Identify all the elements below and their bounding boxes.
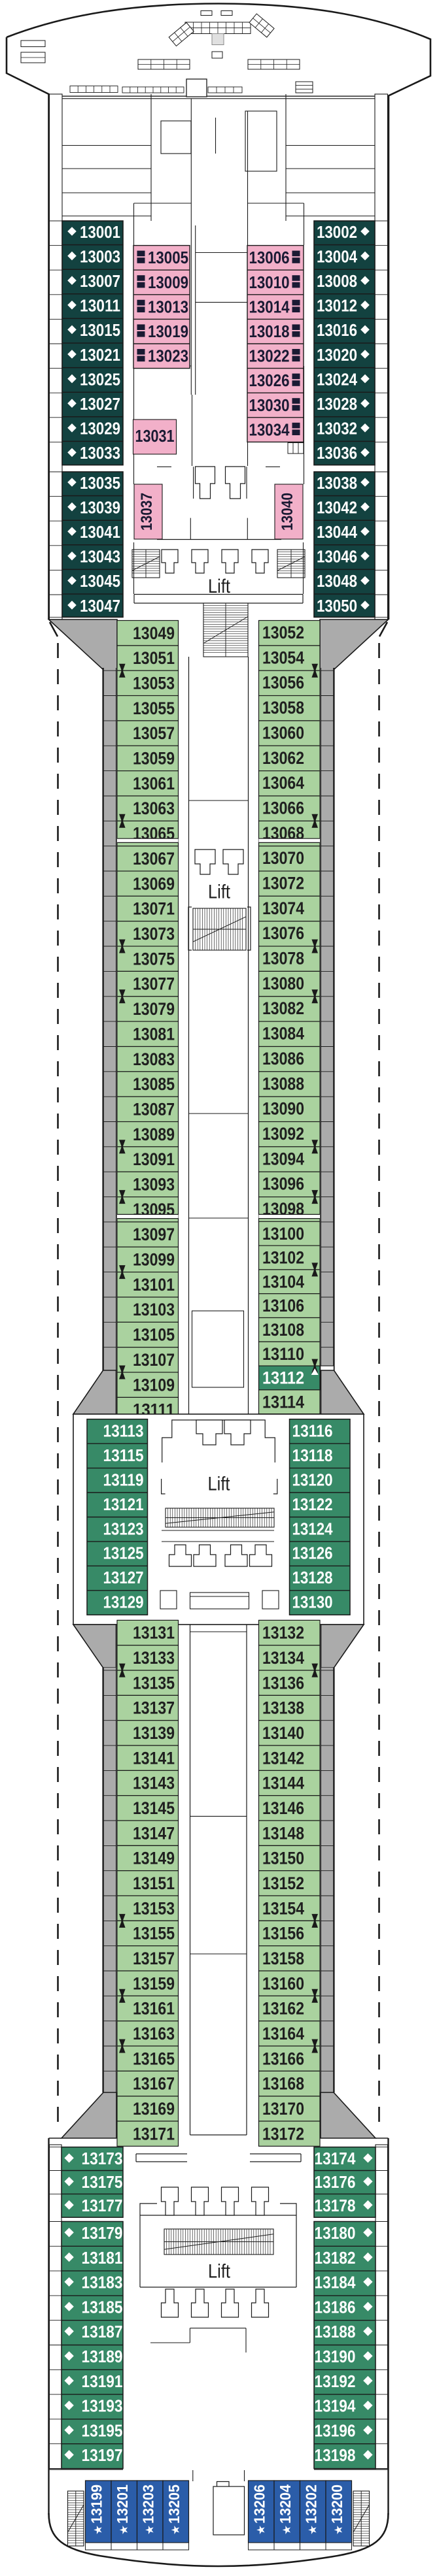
svg-text:13034: 13034 [249, 420, 290, 439]
svg-text:13081: 13081 [133, 1024, 175, 1044]
svg-text:13158: 13158 [262, 1949, 304, 1968]
svg-text:13176: 13176 [315, 2172, 356, 2192]
svg-text:13015: 13015 [80, 320, 120, 340]
svg-text:13102: 13102 [262, 1248, 304, 1268]
svg-text:13028: 13028 [317, 394, 357, 414]
svg-text:13109: 13109 [133, 1375, 175, 1395]
svg-text:13170: 13170 [262, 2099, 304, 2119]
svg-text:13197: 13197 [82, 2445, 123, 2465]
svg-text:13157: 13157 [133, 1949, 175, 1968]
svg-text:13100: 13100 [262, 1224, 304, 1244]
svg-text:13128: 13128 [292, 1568, 333, 1587]
svg-text:13169: 13169 [133, 2099, 175, 2119]
svg-text:13173: 13173 [82, 2149, 123, 2168]
svg-text:13201: 13201 [114, 2485, 131, 2524]
svg-text:★: ★ [281, 2525, 293, 2535]
svg-text:Lift: Lift [208, 1474, 231, 1495]
svg-text:13080: 13080 [262, 974, 304, 993]
svg-text:13012: 13012 [317, 296, 357, 316]
svg-text:13149: 13149 [133, 1849, 175, 1868]
svg-text:13168: 13168 [262, 2074, 304, 2094]
svg-text:13075: 13075 [133, 949, 175, 968]
svg-text:13026: 13026 [249, 371, 290, 390]
svg-text:13154: 13154 [262, 1898, 304, 1918]
svg-text:13196: 13196 [315, 2420, 356, 2440]
svg-text:13180: 13180 [315, 2223, 356, 2243]
svg-text:13118: 13118 [292, 1445, 333, 1465]
svg-text:13043: 13043 [80, 547, 120, 567]
svg-text:13092: 13092 [262, 1124, 304, 1144]
svg-text:13165: 13165 [133, 2049, 175, 2068]
svg-text:13152: 13152 [262, 1874, 304, 1893]
svg-text:13082: 13082 [262, 999, 304, 1018]
svg-text:13070: 13070 [262, 848, 304, 868]
svg-text:13036: 13036 [317, 443, 357, 463]
svg-text:13053: 13053 [133, 674, 175, 693]
svg-text:13150: 13150 [262, 1849, 304, 1868]
svg-text:13138: 13138 [262, 1698, 304, 1718]
svg-text:★: ★ [169, 2525, 182, 2535]
svg-text:13079: 13079 [133, 999, 175, 1019]
svg-text:★: ★ [307, 2525, 319, 2535]
svg-text:13057: 13057 [133, 723, 175, 743]
svg-text:13083: 13083 [133, 1049, 175, 1069]
svg-text:13071: 13071 [133, 899, 175, 919]
svg-text:13160: 13160 [262, 1973, 304, 1993]
svg-text:13041: 13041 [80, 522, 120, 542]
svg-text:13101: 13101 [133, 1275, 175, 1295]
svg-text:13167: 13167 [133, 2074, 175, 2094]
svg-text:13182: 13182 [315, 2248, 356, 2268]
svg-text:13133: 13133 [133, 1648, 175, 1668]
svg-text:13030: 13030 [249, 395, 290, 415]
svg-text:13023: 13023 [148, 346, 188, 366]
svg-text:13009: 13009 [148, 272, 188, 292]
svg-text:13126: 13126 [292, 1544, 333, 1563]
svg-text:13008: 13008 [317, 271, 357, 291]
svg-text:13204: 13204 [277, 2485, 294, 2524]
svg-text:13091: 13091 [133, 1149, 175, 1169]
svg-text:13016: 13016 [317, 320, 357, 340]
svg-text:13120: 13120 [292, 1470, 333, 1489]
svg-text:13190: 13190 [315, 2347, 356, 2366]
svg-text:13140: 13140 [262, 1723, 304, 1743]
svg-text:13067: 13067 [133, 849, 175, 868]
svg-text:13056: 13056 [262, 673, 304, 693]
svg-text:13060: 13060 [262, 723, 304, 742]
svg-text:13031: 13031 [135, 426, 175, 446]
svg-text:★: ★ [92, 2525, 105, 2535]
svg-text:13159: 13159 [133, 1973, 175, 1993]
svg-text:13194: 13194 [315, 2396, 356, 2416]
svg-text:13086: 13086 [262, 1049, 304, 1068]
svg-text:13105: 13105 [133, 1325, 175, 1345]
svg-text:13123: 13123 [103, 1519, 144, 1538]
svg-text:13179: 13179 [82, 2223, 123, 2243]
svg-text:13038: 13038 [317, 473, 357, 493]
svg-text:★: ★ [332, 2525, 345, 2535]
svg-text:13198: 13198 [315, 2445, 356, 2465]
svg-text:13094: 13094 [262, 1149, 304, 1168]
svg-text:13135: 13135 [133, 1673, 175, 1693]
svg-text:13185: 13185 [82, 2297, 123, 2317]
svg-text:13066: 13066 [262, 799, 304, 818]
svg-text:13199: 13199 [88, 2485, 105, 2524]
svg-text:13144: 13144 [262, 1774, 304, 1793]
svg-text:13010: 13010 [249, 272, 290, 292]
svg-text:13203: 13203 [140, 2485, 157, 2524]
svg-text:13106: 13106 [262, 1296, 304, 1315]
svg-text:13040: 13040 [279, 493, 296, 531]
svg-text:13187: 13187 [82, 2322, 123, 2341]
svg-text:13064: 13064 [262, 773, 304, 793]
svg-text:13004: 13004 [317, 246, 357, 266]
svg-text:13115: 13115 [103, 1445, 144, 1465]
svg-text:★: ★ [118, 2525, 130, 2535]
svg-text:13195: 13195 [82, 2420, 123, 2440]
svg-text:13096: 13096 [262, 1174, 304, 1194]
svg-text:13104: 13104 [262, 1272, 304, 1291]
svg-text:13162: 13162 [262, 1999, 304, 2019]
svg-text:13137: 13137 [133, 1698, 175, 1718]
svg-text:13114: 13114 [262, 1392, 304, 1412]
svg-text:13062: 13062 [262, 748, 304, 768]
svg-text:13181: 13181 [82, 2248, 123, 2268]
svg-text:13032: 13032 [317, 419, 357, 438]
svg-text:13146: 13146 [262, 1798, 304, 1818]
svg-text:13134: 13134 [262, 1648, 304, 1668]
svg-text:13156: 13156 [262, 1924, 304, 1943]
svg-text:13055: 13055 [133, 699, 175, 718]
svg-text:13077: 13077 [133, 974, 175, 994]
svg-text:13058: 13058 [262, 698, 304, 718]
svg-text:13186: 13186 [315, 2297, 356, 2317]
svg-text:13087: 13087 [133, 1100, 175, 1119]
svg-text:13076: 13076 [262, 923, 304, 943]
svg-text:13136: 13136 [262, 1673, 304, 1693]
svg-text:13121: 13121 [103, 1494, 144, 1514]
svg-text:13093: 13093 [133, 1175, 175, 1195]
svg-text:13125: 13125 [103, 1544, 144, 1563]
svg-text:13020: 13020 [317, 345, 357, 365]
svg-text:13002: 13002 [317, 222, 357, 242]
svg-text:13124: 13124 [292, 1519, 333, 1538]
svg-text:13063: 13063 [133, 799, 175, 818]
svg-text:13021: 13021 [80, 345, 120, 365]
svg-text:13090: 13090 [262, 1099, 304, 1119]
svg-text:13051: 13051 [133, 648, 175, 668]
svg-text:13178: 13178 [315, 2196, 356, 2215]
svg-text:13183: 13183 [82, 2273, 123, 2292]
svg-text:13035: 13035 [80, 473, 120, 493]
svg-text:13099: 13099 [133, 1250, 175, 1270]
svg-text:13013: 13013 [148, 297, 188, 316]
svg-text:★: ★ [144, 2525, 156, 2535]
svg-text:13003: 13003 [80, 246, 120, 266]
svg-text:13175: 13175 [82, 2172, 123, 2192]
svg-text:13050: 13050 [317, 596, 357, 616]
svg-text:13139: 13139 [133, 1723, 175, 1743]
svg-text:13132: 13132 [262, 1623, 304, 1643]
svg-text:13019: 13019 [148, 322, 188, 341]
svg-text:13171: 13171 [133, 2124, 175, 2143]
svg-text:13052: 13052 [262, 623, 304, 642]
svg-text:13059: 13059 [133, 749, 175, 768]
svg-text:13142: 13142 [262, 1748, 304, 1768]
svg-text:13046: 13046 [317, 547, 357, 567]
svg-text:13042: 13042 [317, 497, 357, 517]
svg-text:13122: 13122 [292, 1494, 333, 1514]
svg-text:13112: 13112 [262, 1368, 304, 1388]
svg-text:13188: 13188 [315, 2322, 356, 2341]
svg-text:13047: 13047 [80, 596, 120, 616]
svg-text:13107: 13107 [133, 1350, 175, 1370]
svg-text:13164: 13164 [262, 2024, 304, 2043]
svg-text:13143: 13143 [133, 1774, 175, 1793]
svg-text:13006: 13006 [249, 248, 290, 267]
svg-text:13001: 13001 [80, 222, 120, 242]
svg-text:13029: 13029 [80, 419, 120, 438]
svg-text:13148: 13148 [262, 1823, 304, 1843]
svg-text:13078: 13078 [262, 949, 304, 968]
svg-text:Lift: Lift [208, 2261, 231, 2283]
svg-text:13022: 13022 [249, 346, 290, 366]
svg-text:Lift: Lift [208, 882, 231, 903]
svg-text:13025: 13025 [80, 369, 120, 389]
svg-text:13151: 13151 [133, 1874, 175, 1893]
svg-text:13061: 13061 [133, 774, 175, 793]
svg-text:13039: 13039 [80, 497, 120, 517]
svg-text:13200: 13200 [328, 2485, 345, 2524]
svg-text:13089: 13089 [133, 1125, 175, 1144]
svg-text:13072: 13072 [262, 874, 304, 893]
svg-text:13172: 13172 [262, 2124, 304, 2143]
svg-text:13155: 13155 [133, 1924, 175, 1943]
svg-text:13174: 13174 [315, 2149, 356, 2168]
svg-text:13166: 13166 [262, 2049, 304, 2068]
svg-text:13130: 13130 [292, 1593, 333, 1612]
svg-text:13192: 13192 [315, 2371, 356, 2391]
svg-text:13074: 13074 [262, 899, 304, 918]
svg-text:13147: 13147 [133, 1823, 175, 1843]
svg-text:13085: 13085 [133, 1074, 175, 1094]
svg-text:13007: 13007 [80, 271, 120, 291]
svg-text:13073: 13073 [133, 924, 175, 944]
svg-text:13069: 13069 [133, 874, 175, 893]
svg-text:13205: 13205 [166, 2485, 183, 2524]
svg-text:13049: 13049 [133, 623, 175, 643]
svg-text:13048: 13048 [317, 571, 357, 591]
svg-text:13116: 13116 [292, 1421, 333, 1441]
svg-text:13131: 13131 [133, 1623, 175, 1643]
svg-text:13037: 13037 [138, 493, 156, 531]
svg-text:13024: 13024 [317, 369, 357, 389]
svg-text:13206: 13206 [251, 2485, 268, 2524]
svg-text:13088: 13088 [262, 1074, 304, 1093]
svg-text:★: ★ [255, 2525, 268, 2535]
svg-text:13033: 13033 [80, 443, 120, 463]
svg-text:13027: 13027 [80, 394, 120, 414]
svg-text:13108: 13108 [262, 1320, 304, 1340]
svg-text:13103: 13103 [133, 1300, 175, 1319]
svg-text:13161: 13161 [133, 1999, 175, 2019]
svg-text:13177: 13177 [82, 2196, 123, 2215]
svg-text:13113: 13113 [103, 1421, 144, 1441]
svg-text:13153: 13153 [133, 1898, 175, 1918]
svg-text:13141: 13141 [133, 1748, 175, 1768]
svg-text:13145: 13145 [133, 1798, 175, 1818]
svg-text:13191: 13191 [82, 2371, 123, 2391]
svg-text:13119: 13119 [103, 1470, 144, 1489]
svg-text:13005: 13005 [148, 248, 188, 267]
svg-text:13044: 13044 [317, 522, 357, 542]
svg-text:13184: 13184 [315, 2273, 356, 2292]
svg-text:13084: 13084 [262, 1024, 304, 1044]
svg-text:13011: 13011 [80, 296, 120, 316]
svg-text:13202: 13202 [303, 2485, 320, 2524]
svg-text:13189: 13189 [82, 2347, 123, 2366]
svg-text:13129: 13129 [103, 1593, 144, 1612]
svg-text:13018: 13018 [249, 322, 290, 341]
svg-text:13163: 13163 [133, 2024, 175, 2043]
svg-text:13014: 13014 [249, 297, 290, 316]
svg-text:13110: 13110 [262, 1344, 304, 1364]
svg-text:13127: 13127 [103, 1568, 144, 1587]
svg-text:13045: 13045 [80, 571, 120, 591]
svg-text:13097: 13097 [133, 1225, 175, 1244]
svg-text:13193: 13193 [82, 2396, 123, 2416]
svg-text:13054: 13054 [262, 648, 304, 667]
